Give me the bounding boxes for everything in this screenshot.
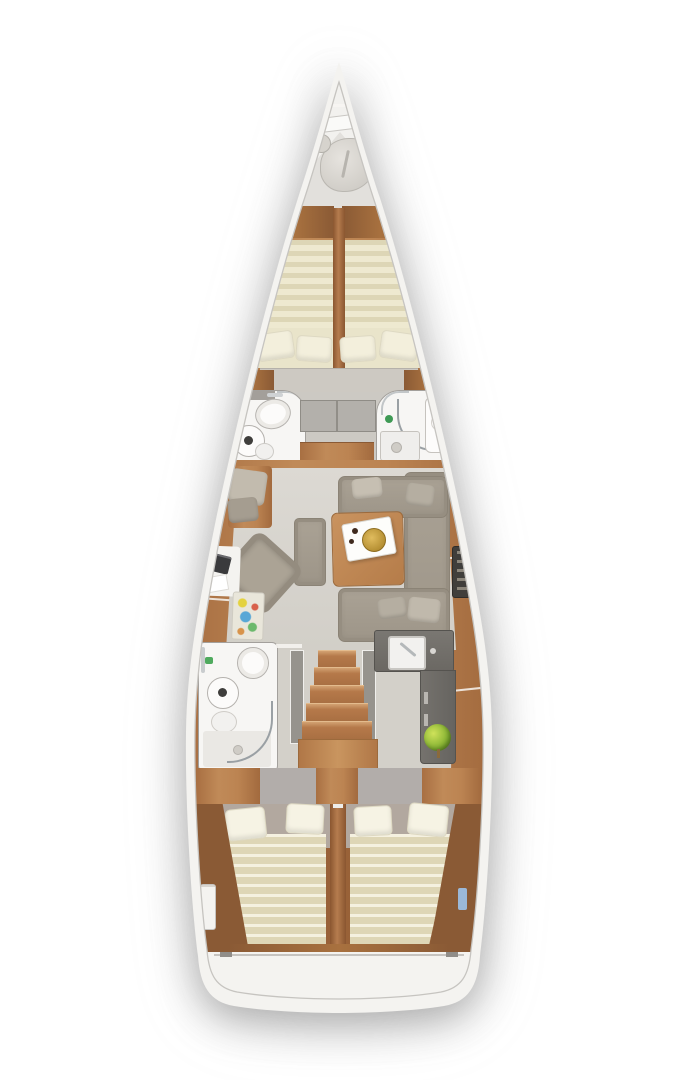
- sofa-pillow-2: [405, 482, 436, 508]
- aft-blue-hatch: [458, 888, 467, 910]
- shower-tray: [380, 431, 420, 461]
- aft-pillow-2: [285, 803, 325, 835]
- berry-2: [349, 539, 354, 544]
- toilet-roll: [255, 443, 274, 460]
- berry-1: [352, 528, 358, 534]
- galley-knob: [430, 648, 436, 654]
- drawer-handle-1: [424, 692, 428, 704]
- sofa-pillow-4: [407, 596, 441, 623]
- basin-drain: [244, 436, 253, 445]
- fruit-bowl: [424, 724, 451, 751]
- sofa-pillow-1: [351, 476, 383, 499]
- aft-pillow-1: [224, 806, 267, 842]
- wardrobe-divider: [336, 401, 338, 431]
- galley-faucet: [399, 642, 416, 657]
- basin-drain: [218, 688, 227, 697]
- aft-pillow-3: [353, 805, 393, 837]
- gold-plate: [362, 528, 386, 552]
- corner-seat-cushion-2: [227, 496, 259, 523]
- aft-divider-cap: [333, 804, 343, 808]
- green-accessory: [205, 657, 213, 664]
- galley-sink: [388, 636, 426, 670]
- aft-pillow-4: [406, 802, 449, 838]
- aft-head: [198, 642, 278, 772]
- transom-notch-port: [220, 952, 232, 957]
- drawer-handle-2: [424, 714, 428, 726]
- sea-chart: [231, 591, 265, 640]
- forward-pillow-3: [339, 335, 377, 363]
- shower-drain: [391, 442, 402, 453]
- green-accessory: [385, 415, 393, 423]
- toilet-bowl: [237, 647, 269, 679]
- sofa-pillow-3: [377, 596, 408, 620]
- aft-wall-segment: [276, 644, 302, 648]
- forward-pillow-2: [295, 335, 333, 363]
- fruit-stem: [437, 749, 440, 758]
- transom-seam: [214, 954, 464, 956]
- center-wardrobe: [300, 400, 376, 432]
- transom-notch-starboard: [446, 952, 458, 957]
- aft-berth-divider: [330, 804, 346, 950]
- floorplan-canvas: [0, 0, 675, 1080]
